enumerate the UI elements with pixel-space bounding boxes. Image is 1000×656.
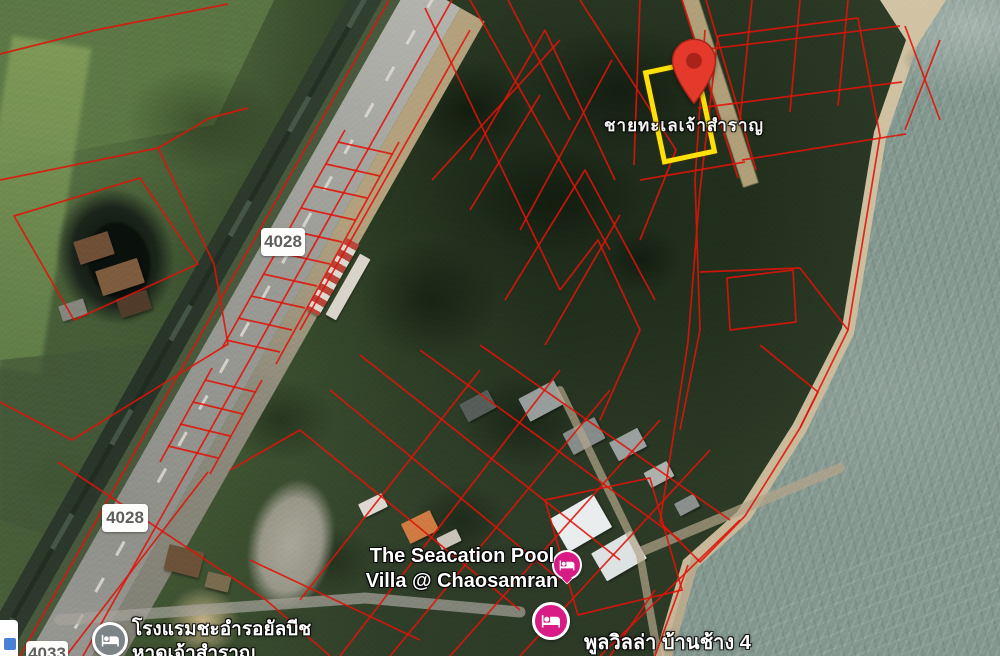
- poi-glyph: [4, 638, 16, 650]
- satellite-map-canvas[interactable]: ชายทะเลเจ้าสำราญ 4028 4028 4033 The Seac…: [0, 0, 1000, 656]
- poi-label-line1: The Seacation Pool: [370, 545, 554, 567]
- route-number: 4033: [28, 644, 66, 656]
- poi-label-seacation[interactable]: The Seacation Pool Villa @ Chaosamran: [352, 544, 572, 594]
- lodging-icon[interactable]: [92, 622, 128, 656]
- map-pin-icon[interactable]: [666, 36, 722, 108]
- clipped-poi-icon[interactable]: [0, 620, 18, 656]
- poi-label-line1: โรงแรมชะอำรอยัลบีช: [132, 619, 311, 640]
- poi-label-line2: Villa @ Chaosamran: [366, 570, 559, 592]
- route-shield-4028: 4028: [261, 228, 305, 256]
- lodging-icon[interactable]: [532, 602, 570, 640]
- route-shield-4033: 4033: [26, 641, 68, 656]
- route-number: 4028: [264, 232, 302, 252]
- route-number: 4028: [106, 508, 144, 528]
- parcel-area-label: ชายทะเลเจ้าสำราญ: [604, 112, 764, 139]
- poi-label-hotel[interactable]: โรงแรมชะอำรอยัลบีช หาดเจ้าสำราญ: [132, 618, 311, 656]
- poi-label-line2: หาดเจ้าสำราญ: [132, 643, 255, 656]
- poi-label-pool-villa[interactable]: พูลวิลล่า บ้านช้าง 4: [584, 626, 751, 656]
- route-shield-4028: 4028: [102, 504, 148, 532]
